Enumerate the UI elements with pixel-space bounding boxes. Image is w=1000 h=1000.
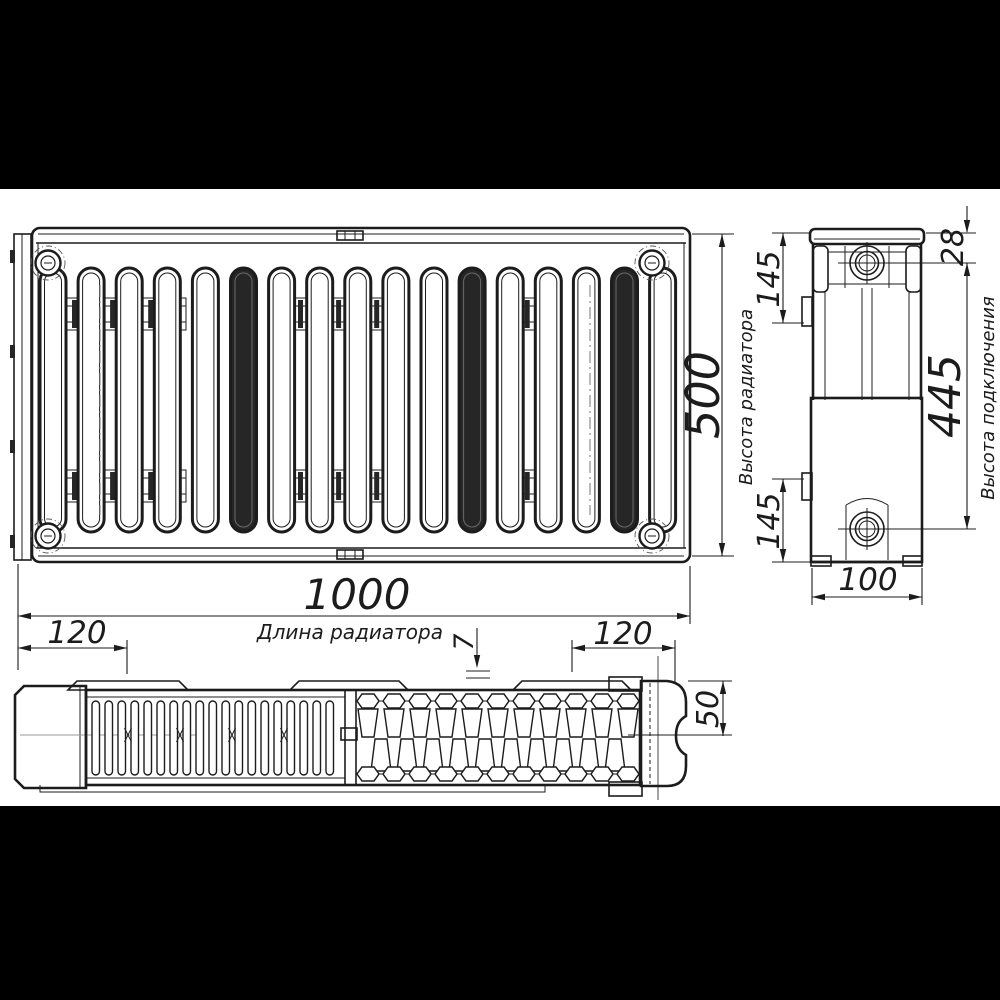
dim-top-offset: 28 — [926, 206, 976, 266]
dim-depth-value: 100 — [838, 562, 897, 598]
front-fins — [40, 268, 676, 532]
drawing-canvas: 500 Высота радиатора 1000 Длина радиатор… — [0, 0, 1000, 1000]
dim-height-label: Высота радиатора — [736, 309, 757, 485]
bracket-plate-2 — [290, 681, 408, 690]
letterbox-top — [0, 0, 1000, 189]
front-view — [10, 228, 690, 562]
bottom-center-tab — [337, 550, 363, 559]
dim-bracket-left-value: 120 — [47, 615, 106, 651]
dim-height-value: 500 — [676, 351, 730, 439]
dim-depth: 100 — [812, 562, 922, 605]
dim-bracket-bottom-value: 145 — [752, 492, 787, 549]
wall-bracket-strip — [10, 234, 31, 560]
dim-half-depth: 50 — [628, 681, 732, 736]
dim-panel-gap-value: 7 — [449, 633, 480, 650]
panel-section-left — [813, 246, 828, 292]
side-view — [802, 229, 924, 566]
section-cut — [357, 694, 640, 781]
dim-height: 500 Высота радиатора — [676, 234, 757, 556]
panel-section-right — [906, 246, 921, 292]
dim-half-depth-value: 50 — [691, 690, 726, 728]
dim-connection-label: Высота подключения — [978, 296, 999, 500]
top-grille-slots — [92, 701, 334, 775]
dim-bracket-right: 120 — [572, 616, 675, 684]
dim-bracket-top-value: 145 — [752, 250, 787, 307]
wall-hook-upper — [802, 297, 812, 326]
dim-length-label: Длина радиатора — [256, 620, 443, 644]
dim-length: 1000 Длина радиатора — [18, 564, 690, 670]
top-center-tab — [337, 231, 363, 240]
dim-connection-height: 445 Высота подключения — [890, 263, 999, 529]
bracket-plate-3 — [513, 681, 631, 690]
dim-top-offset-value: 28 — [936, 228, 971, 266]
bottom-port — [838, 508, 898, 550]
dim-panel-gap: 7 — [449, 628, 490, 678]
letterbox-bottom — [0, 806, 1000, 1000]
bottom-view — [15, 656, 686, 800]
dim-connection-value: 445 — [920, 354, 971, 438]
dim-length-value: 1000 — [304, 570, 411, 619]
end-cap-left — [15, 686, 86, 788]
technical-drawing: 500 Высота радиатора 1000 Длина радиатор… — [0, 0, 1000, 1000]
dim-bracket-right-value: 120 — [593, 616, 652, 652]
side-top-cap — [810, 229, 924, 244]
dim-bracket-left: 120 — [18, 615, 127, 674]
